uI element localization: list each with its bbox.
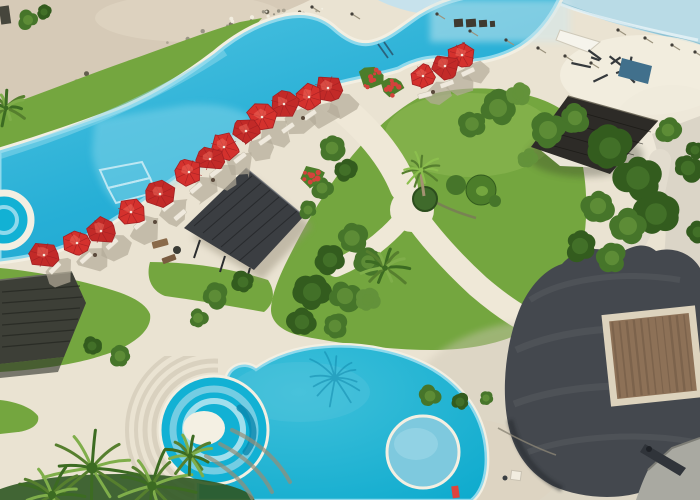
- umbrella-pole-top: [130, 211, 133, 214]
- umbrella-pole-top: [209, 158, 212, 161]
- red-bloom: [315, 176, 321, 182]
- rock-speckle: [282, 9, 286, 13]
- canopy-top: [304, 206, 313, 215]
- deck-post: [536, 46, 539, 49]
- red-bloom: [373, 72, 376, 75]
- tree: [458, 112, 485, 138]
- umbrella-pole-top: [444, 65, 447, 68]
- canopy-top: [568, 111, 582, 125]
- red-bloom: [377, 70, 382, 75]
- red-bloom: [390, 79, 394, 83]
- spa-island: [183, 411, 225, 445]
- canopy-top: [303, 283, 321, 301]
- canopy-top: [645, 203, 667, 225]
- canopy-top: [209, 290, 222, 303]
- guest: [431, 90, 435, 94]
- canopy-top: [626, 166, 649, 189]
- tree: [320, 135, 346, 161]
- palm-crown: [382, 265, 388, 271]
- canopy-top: [323, 253, 337, 267]
- canopy-top: [619, 217, 637, 235]
- deck-post: [589, 61, 592, 64]
- canopy-top: [23, 15, 33, 25]
- red-bloom: [308, 180, 313, 185]
- deck-post: [563, 54, 566, 57]
- canopy-top: [691, 146, 700, 155]
- canopy-top: [295, 315, 309, 329]
- palm-crown: [4, 106, 9, 111]
- drain-cap: [503, 476, 508, 481]
- canopy-top: [539, 121, 557, 139]
- canopy-top: [238, 277, 249, 288]
- guest: [301, 116, 305, 120]
- umbrella-pole-top: [422, 75, 425, 78]
- rock-speckle: [277, 9, 280, 12]
- pebble: [265, 11, 267, 13]
- resort-scene-canvas: [0, 0, 700, 500]
- red-bloom: [316, 170, 321, 175]
- canopy-top: [362, 294, 374, 306]
- deck-post: [616, 28, 619, 31]
- umbrella-pole-top: [76, 242, 79, 245]
- palm-crown: [187, 453, 193, 459]
- canopy-top: [339, 164, 351, 176]
- pebble: [321, 8, 323, 10]
- red-bloom: [303, 171, 307, 175]
- red-bloom: [307, 172, 310, 175]
- red-bloom: [368, 74, 373, 79]
- umbrella-pole-top: [159, 193, 162, 196]
- canopy-top: [590, 198, 606, 214]
- palm-planter: [413, 187, 437, 211]
- deck-post: [350, 12, 353, 15]
- pool-spa-left: [0, 193, 31, 247]
- palm-crown: [48, 491, 56, 499]
- palm-crown: [147, 481, 157, 491]
- deck-post: [643, 36, 646, 39]
- umbrella-pole-top: [223, 146, 226, 149]
- palm-crown: [331, 374, 338, 381]
- deck-post: [693, 50, 696, 53]
- deck-post: [468, 29, 471, 32]
- canopy-top: [329, 320, 342, 333]
- canopy-top: [489, 99, 507, 117]
- rock-speckle: [201, 29, 205, 33]
- deck-post: [670, 43, 673, 46]
- canopy-top: [465, 117, 479, 131]
- umbrella-pole-top: [100, 230, 103, 233]
- guest: [211, 178, 215, 182]
- canopy-top: [344, 230, 359, 245]
- pool-umbrella: [118, 199, 144, 224]
- canopy-top: [523, 153, 533, 163]
- red-bloom: [365, 85, 369, 89]
- canopy-top: [193, 313, 203, 323]
- umbrella-pole-top: [327, 87, 330, 90]
- red-bloom: [373, 79, 376, 82]
- canopy-top: [681, 161, 695, 175]
- pebble: [267, 15, 270, 18]
- canopy-top: [482, 394, 489, 401]
- rock-speckle: [166, 41, 169, 44]
- red-bloom: [390, 93, 395, 98]
- canopy-top: [572, 238, 588, 254]
- pebble: [229, 17, 233, 21]
- umbrella-pole-top: [308, 96, 311, 99]
- red-bloom: [302, 177, 306, 181]
- deck-post: [435, 12, 438, 15]
- deck-post: [504, 38, 507, 41]
- canopy-top: [115, 351, 126, 362]
- canopy-top: [337, 288, 353, 304]
- canopy-top: [605, 251, 619, 265]
- red-bloom: [386, 85, 391, 90]
- palm-crown: [419, 168, 424, 173]
- deck-post: [310, 5, 313, 8]
- canopy-top: [326, 142, 339, 155]
- canopy-top: [599, 137, 621, 159]
- palm-crown: [86, 462, 97, 473]
- canopy-top: [662, 124, 675, 137]
- canopy-top: [512, 88, 524, 100]
- resort-aerial-photo: [0, 0, 700, 500]
- canopy-top: [317, 183, 328, 194]
- canopy-top: [88, 342, 97, 351]
- canopy-top: [425, 391, 436, 402]
- guest: [93, 253, 97, 257]
- canopy-top: [40, 8, 47, 15]
- canopy-top: [456, 398, 465, 407]
- rock-speckle: [262, 10, 265, 13]
- red-bloom: [394, 82, 398, 86]
- umbrella-pole-top: [188, 171, 191, 174]
- umbrella-pole-top: [283, 103, 286, 106]
- guest: [153, 220, 157, 224]
- umbrella-pole-top: [261, 116, 264, 119]
- umbrella-pole-top: [461, 54, 464, 57]
- pebble: [250, 15, 254, 19]
- deck-tile: [510, 470, 521, 480]
- rock-speckle: [273, 13, 275, 15]
- umbrella-pole-top: [43, 254, 46, 257]
- wood-skylight-panel: [601, 305, 700, 406]
- umbrella-pole-top: [245, 130, 248, 133]
